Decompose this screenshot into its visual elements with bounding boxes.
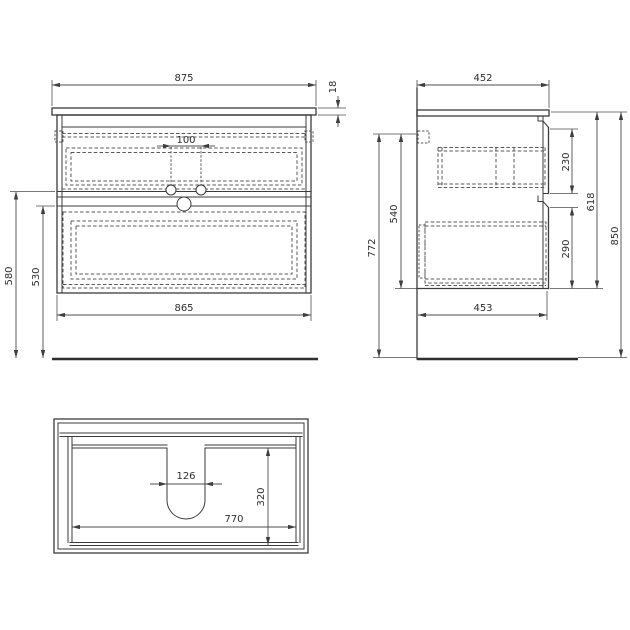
siphon-holes xyxy=(166,147,206,195)
dim-mount-height: 772 xyxy=(367,134,379,358)
dim-label-320: 320 xyxy=(256,487,267,506)
siphon-cutout xyxy=(167,448,205,519)
dim-label-453: 453 xyxy=(473,303,492,314)
dim-label-530: 530 xyxy=(31,267,42,286)
dim-body-height: 618 xyxy=(551,112,627,289)
wall-bracket-side xyxy=(418,131,429,143)
front-view: 875 18 100 865 580 xyxy=(4,73,346,359)
dim-label-540: 540 xyxy=(389,204,400,223)
dim-total-height: 850 xyxy=(610,112,621,358)
dim-countertop-thickness: 18 xyxy=(318,81,346,127)
knob-hole xyxy=(177,197,191,211)
dim-label-850: 850 xyxy=(610,226,621,245)
dim-label-100: 100 xyxy=(176,135,195,146)
dim-label-230: 230 xyxy=(561,152,572,171)
countertop-side xyxy=(417,110,549,116)
side-view: 452 540 772 230 290 xyxy=(367,73,627,359)
dim-label-126: 126 xyxy=(176,471,195,482)
dim-inner-depth: 320 xyxy=(256,448,268,545)
dim-front-bottom-width: 865 xyxy=(57,295,311,321)
dim-label-580: 580 xyxy=(4,266,15,285)
dim-label-875: 875 xyxy=(174,73,193,84)
lower-drawer-hidden-lines xyxy=(63,212,305,288)
dim-inner-height: 540 xyxy=(389,134,401,289)
technical-drawing-page: 875 18 100 865 580 xyxy=(0,0,630,630)
dim-front-top-width: 875 xyxy=(52,73,316,106)
dim-left-inner-height: 530 xyxy=(31,206,55,358)
dim-label-865: 865 xyxy=(174,303,193,314)
countertop-front xyxy=(52,108,316,115)
dim-cutout-width: 126 xyxy=(150,471,222,484)
dim-inner-width: 770 xyxy=(72,514,296,527)
upper-drawer-box-hidden xyxy=(438,148,545,188)
hole-left xyxy=(166,185,176,195)
dim-side-top-depth: 452 xyxy=(417,73,549,108)
dim-lower-drawer-front: 290 xyxy=(550,208,603,289)
plan-view: 126 320 770 xyxy=(54,419,308,553)
dim-label-18: 18 xyxy=(328,81,339,94)
dim-upper-drawer-front: 230 xyxy=(550,129,578,194)
dim-label-772: 772 xyxy=(367,238,378,257)
dim-label-290: 290 xyxy=(561,239,572,258)
lower-drawer-box-hidden xyxy=(419,222,546,286)
plan-outer xyxy=(54,419,308,553)
plan-inner xyxy=(58,423,304,549)
dim-label-770: 770 xyxy=(224,514,243,525)
dim-side-bottom-depth: 453 xyxy=(418,291,547,320)
vanity-technical-drawing: 875 18 100 865 580 xyxy=(0,0,630,630)
dim-label-618: 618 xyxy=(586,192,597,211)
dim-left-outer-height: 580 xyxy=(4,192,55,359)
dim-label-452: 452 xyxy=(473,73,492,84)
hole-right xyxy=(196,185,206,195)
